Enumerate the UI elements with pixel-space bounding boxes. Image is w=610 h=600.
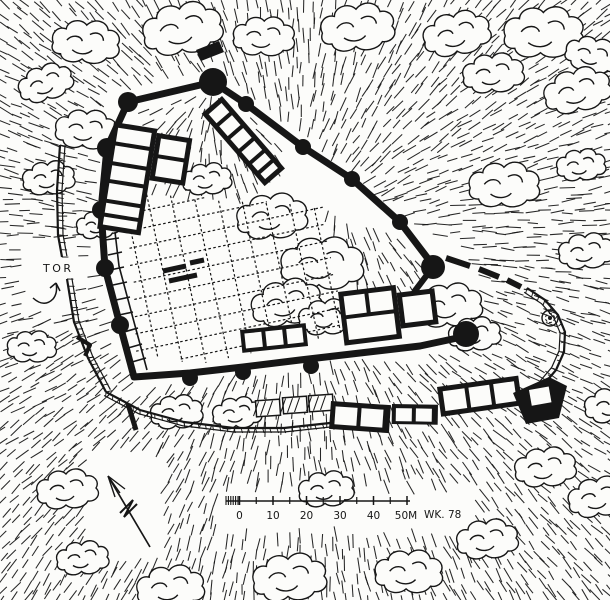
wall-tower: [96, 259, 114, 277]
wall-tower: [238, 96, 254, 112]
wall-tower: [235, 364, 251, 380]
zwinger-building: [392, 404, 438, 425]
room: [286, 327, 303, 344]
room: [344, 294, 367, 315]
wall-tower: [295, 139, 311, 155]
room: [360, 408, 383, 427]
wall-tower: [392, 214, 408, 230]
wall-tower: [344, 171, 360, 187]
scale-end-label: 50M: [395, 510, 417, 522]
scale-tick-label: 10: [266, 510, 279, 522]
room: [402, 294, 433, 323]
zwinger-building: [329, 401, 391, 433]
room: [334, 406, 357, 425]
room: [368, 291, 393, 313]
room: [244, 332, 262, 349]
wall-tower: [182, 370, 198, 386]
wall-tower: [303, 358, 319, 374]
scale-tick-label: 20: [300, 510, 313, 522]
wall-tower: [118, 92, 138, 112]
room: [396, 408, 412, 421]
scale-tick-label: 40: [367, 510, 380, 522]
room: [443, 388, 468, 411]
gate-label: TOR: [42, 262, 74, 275]
castle-map-drawing: TOR 010203040 50M WK. 78: [0, 0, 610, 600]
well-center: [548, 316, 552, 320]
room: [265, 330, 283, 347]
signature-label: WK. 78: [424, 509, 461, 521]
room: [529, 387, 551, 406]
scale-tick-label: 0: [236, 510, 243, 522]
wall-tower: [199, 68, 227, 96]
wall-tower: [453, 321, 479, 347]
scale-tick-label: 30: [333, 510, 346, 522]
room: [493, 381, 517, 404]
room: [468, 385, 492, 408]
room: [416, 408, 432, 421]
